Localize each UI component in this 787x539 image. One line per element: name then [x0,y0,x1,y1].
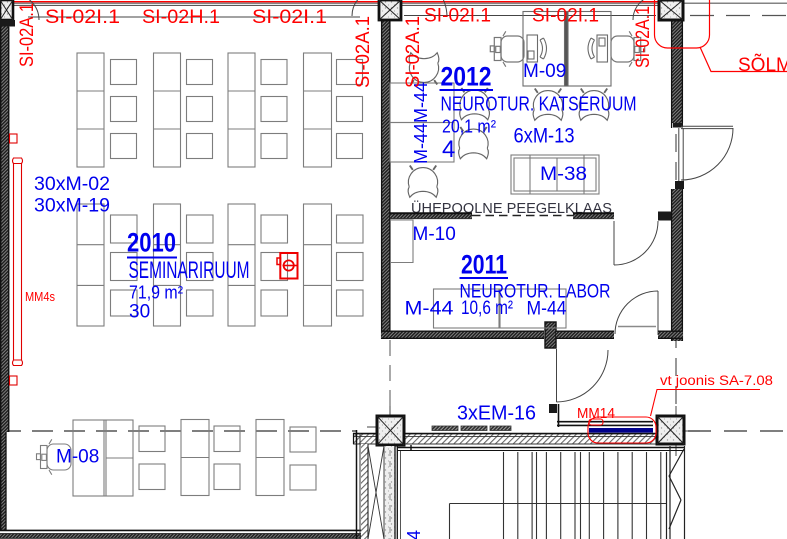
svg-text:MM4s: MM4s [25,289,55,304]
svg-text:20,1 m²: 20,1 m² [442,117,496,137]
svg-text:vt joonis SA-7.08: vt joonis SA-7.08 [660,373,773,388]
svg-text:SI-02H.1: SI-02H.1 [142,7,220,28]
svg-text:M-44M-44: M-44M-44 [411,82,431,164]
svg-text:71,9 m²: 71,9 m² [129,283,183,303]
svg-text:30: 30 [129,302,150,323]
svg-text:6xM-13: 6xM-13 [514,125,575,148]
svg-text:30xM-19: 30xM-19 [34,196,110,217]
svg-text:SI-02I.1: SI-02I.1 [532,6,599,27]
svg-text:NEUROTUR. KATSERUUM: NEUROTUR. KATSERUUM [441,93,637,116]
svg-text:2010: 2010 [127,228,176,258]
svg-text:30xM-02: 30xM-02 [34,174,110,195]
svg-text:-4: -4 [404,530,424,539]
svg-text:M-08: M-08 [56,447,99,468]
svg-text:M-44: M-44 [405,299,454,320]
svg-text:SEMINARIRUUM: SEMINARIRUUM [129,257,250,284]
svg-text:SI-02I.1: SI-02I.1 [45,7,120,28]
svg-text:SI-02A.1: SI-02A.1 [403,16,424,88]
svg-text:3xEM-16: 3xEM-16 [457,402,536,425]
svg-text:10,6 m²: 10,6 m² [461,298,513,319]
svg-text:SI-02I.1: SI-02I.1 [252,7,327,28]
svg-text:SI-02A.1: SI-02A.1 [353,16,374,88]
svg-text:M-44: M-44 [527,299,567,320]
svg-text:SI-02A.1: SI-02A.1 [17,3,38,67]
svg-text:2012: 2012 [441,62,492,92]
svg-text:SI-02A.1: SI-02A.1 [633,6,654,68]
svg-text:4: 4 [442,136,455,163]
svg-text:SI-02I.1: SI-02I.1 [424,6,491,27]
svg-text:M-38: M-38 [540,164,587,185]
svg-text:SÕLM 2: SÕLM 2 [738,54,787,76]
svg-text:M-10: M-10 [413,224,456,245]
svg-text:M-09: M-09 [523,61,566,82]
svg-text:MM14: MM14 [577,406,615,422]
svg-text:2011: 2011 [461,250,507,280]
